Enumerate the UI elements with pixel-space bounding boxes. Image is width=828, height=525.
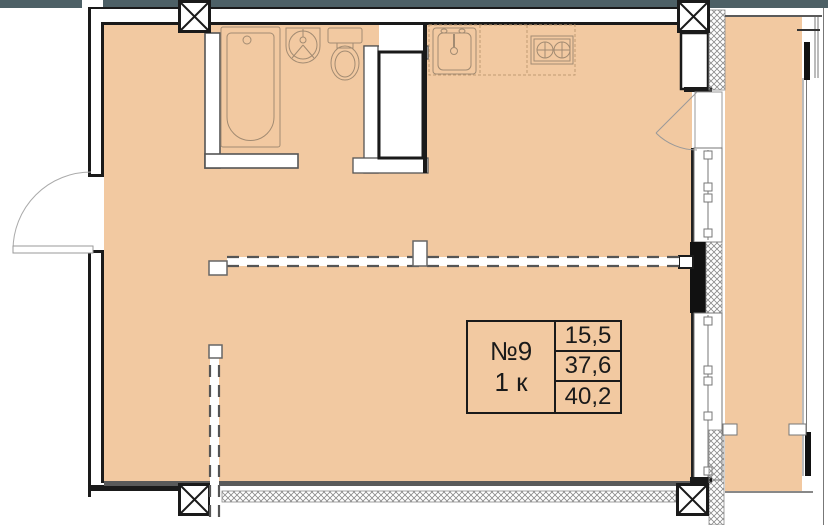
floor-plan-page: №9 1 к 15,5 37,6 40,2 <box>0 0 828 525</box>
unit-number: №9 <box>490 336 532 367</box>
window-upper <box>694 148 722 242</box>
bottom-insulated-wall-hatch <box>222 491 676 502</box>
ventilation-shaft <box>379 52 423 158</box>
column-top-left <box>180 2 210 32</box>
entrance-door-swing <box>13 172 93 253</box>
area-apartment: 37,6 <box>556 352 620 382</box>
column-top-right <box>679 2 709 32</box>
balcony-floor <box>725 17 802 493</box>
unit-number-cell: №9 1 к <box>468 322 556 412</box>
area-living: 15,5 <box>556 322 620 352</box>
floor-plan-canvas <box>0 0 828 525</box>
planned-partition-vertical <box>209 345 222 517</box>
area-total: 40,2 <box>556 382 620 412</box>
insulated-wall-top-right <box>709 10 725 90</box>
shaft-walls <box>353 25 428 173</box>
insulated-wall-bottom-right <box>709 430 724 525</box>
column-bottom-left <box>180 485 210 515</box>
unit-rooms: 1 к <box>494 367 527 398</box>
column-bottom-right <box>678 485 708 515</box>
unit-info-table: №9 1 к 15,5 37,6 40,2 <box>466 320 622 414</box>
